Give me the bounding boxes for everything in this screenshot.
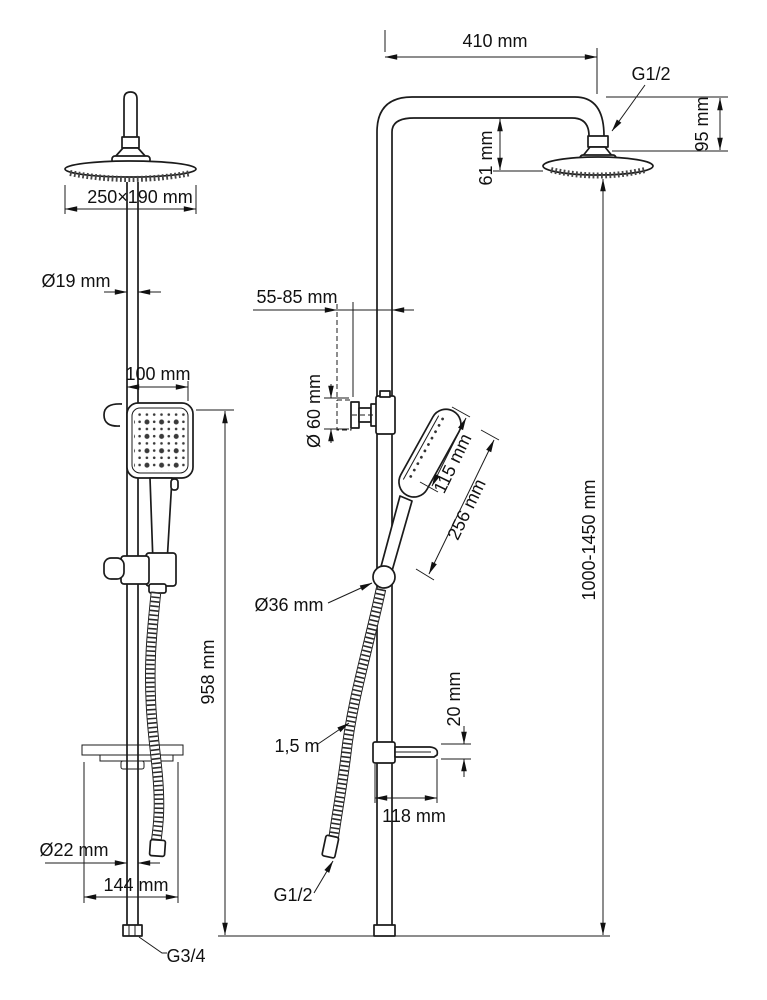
dim-hand-shower-width-label: 100 mm [125, 364, 190, 384]
overhead-shower-side [543, 136, 653, 176]
dim-face-drop: 61 mm [476, 119, 543, 186]
dim-lower-pipe-diameter-label: Ø22 mm [39, 840, 108, 860]
holder-hook [104, 404, 122, 426]
shower-hose-side [322, 589, 381, 858]
dim-shelf-thickness: 20 mm [441, 671, 471, 777]
dim-inlet-connection: G3/4 [139, 937, 206, 966]
technical-drawing-page: 410 mm G1/2 95 mm 61 mm 250×190 mm Ø19 m… [0, 0, 767, 1000]
dim-rail-height: 958 mm [196, 410, 234, 935]
dim-lower-pipe-diameter: Ø22 mm [39, 840, 160, 863]
dim-arm-height-label: 95 mm [692, 96, 712, 151]
dim-wall-clearance: 55-85 mm [253, 287, 414, 310]
dim-overhead-size-label: 250×190 mm [87, 187, 193, 207]
inlet-fitting-side [374, 925, 395, 936]
dim-shelf-thickness-label: 20 mm [444, 671, 464, 726]
hose-end-front [149, 840, 165, 857]
wall-bracket-side [337, 302, 395, 434]
dim-top-width-label: 410 mm [462, 31, 527, 51]
dim-shelf-width: 144 mm [84, 762, 178, 903]
dim-shelf-depth-label: 118 mm [382, 806, 446, 826]
dim-hose-connection-label: G1/2 [273, 885, 312, 905]
overhead-shower-front [65, 92, 196, 179]
spray-button [171, 479, 178, 490]
dim-hand-shower-width: 100 mm [125, 364, 190, 401]
dim-top-width: 410 mm [385, 30, 597, 94]
shower-hose-front [149, 592, 165, 857]
dim-arm-height: 95 mm [606, 96, 728, 151]
dim-shelf-width-label: 144 mm [103, 875, 168, 895]
dim-overall-height: 1000-1450 mm [579, 179, 603, 935]
dim-top-connection-label: G1/2 [631, 64, 670, 84]
dim-pipe-diameter-label: Ø19 mm [41, 271, 110, 291]
riser-pipe-front [127, 182, 138, 925]
dim-escutcheon-diameter-label: Ø 60 mm [304, 374, 324, 448]
dim-hose-connection: G1/2 [273, 861, 333, 905]
shelf-side [373, 742, 437, 763]
inlet-fitting-front [123, 925, 142, 936]
dim-hose-length-label: 1,5 m [274, 736, 319, 756]
shelf-front [82, 745, 183, 769]
dim-wall-clearance-label: 55-85 mm [256, 287, 337, 307]
slide-bracket-front [104, 553, 176, 593]
dim-shelf-depth: 118 mm [375, 759, 446, 826]
front-view [65, 92, 196, 936]
dim-overhead-size: 250×190 mm [65, 185, 196, 214]
shower-system-drawing: 410 mm G1/2 95 mm 61 mm 250×190 mm Ø19 m… [0, 0, 767, 1000]
dim-inlet-connection-label: G3/4 [166, 946, 205, 966]
hand-shower-front [104, 403, 193, 563]
dim-hose-length: 1,5 m [274, 723, 349, 756]
slider-knob-side [373, 566, 395, 588]
dim-face-drop-label: 61 mm [476, 130, 496, 185]
dim-slider-diameter-label: Ø36 mm [254, 595, 323, 615]
dim-slider-diameter: Ø36 mm [254, 583, 372, 615]
dim-escutcheon-diameter: Ø 60 mm [304, 374, 349, 448]
riser-pipe-side [377, 97, 604, 925]
dim-rail-height-label: 958 mm [198, 639, 218, 704]
hand-shower-handle-front [150, 478, 172, 563]
hose-end-side [322, 835, 339, 858]
dim-overall-height-label: 1000-1450 mm [579, 479, 599, 600]
dim-pipe-diameter: Ø19 mm [41, 271, 161, 292]
